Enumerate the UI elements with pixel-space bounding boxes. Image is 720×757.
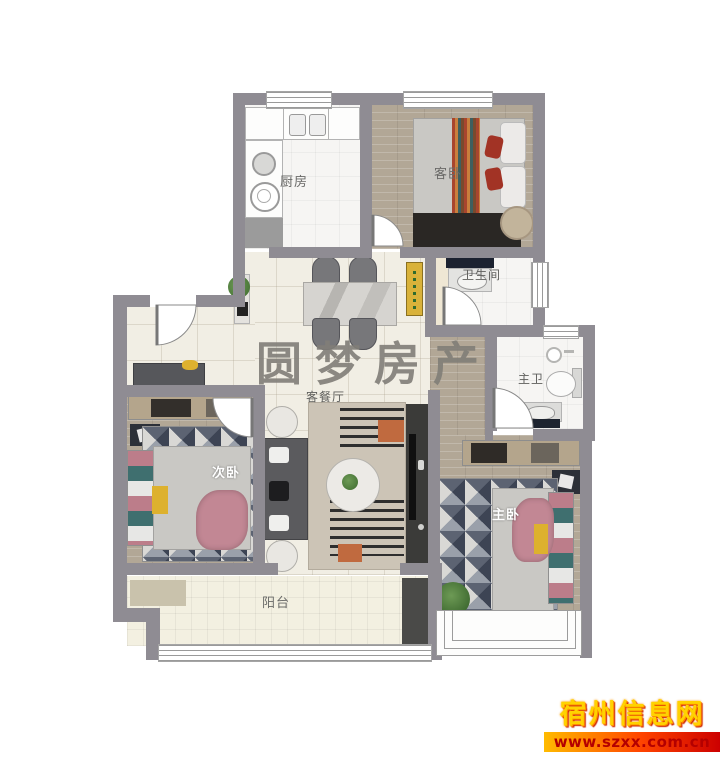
second-bed-blanket	[196, 490, 248, 550]
wall	[425, 247, 436, 337]
wall	[233, 93, 245, 307]
balcony-cabinet	[402, 578, 430, 646]
agency-watermark: 圆梦房产	[256, 328, 492, 394]
sofa	[262, 438, 308, 540]
guest-pillow	[500, 166, 526, 208]
room-label-bathroom: 卫生间	[462, 266, 501, 283]
room-label-master-bedroom: 主卧	[492, 504, 520, 523]
room-label-second-bedroom: 次卧	[212, 462, 240, 481]
stove-icon	[252, 152, 276, 176]
wall	[400, 247, 545, 258]
second-bed-pillows	[127, 450, 155, 546]
room-label-guest-bedroom: 客卧	[434, 163, 462, 182]
kitchen-window	[266, 91, 332, 109]
master-wardrobe	[462, 440, 580, 466]
wall	[233, 247, 245, 258]
master-bathroom-window	[543, 325, 579, 339]
living-rug-accent	[338, 544, 362, 562]
bathroom-door-arc	[442, 286, 482, 326]
guest-bedroom-window	[403, 91, 493, 109]
balcony-mat	[130, 580, 186, 606]
entry-door-arc	[155, 305, 197, 347]
wall	[485, 429, 493, 441]
guest-pillow	[500, 122, 526, 164]
room-label-kitchen: 厨房	[280, 171, 308, 190]
wall	[253, 385, 265, 575]
kitchen-sink	[283, 107, 329, 140]
room-label-master-bathroom: 主卫	[518, 370, 544, 387]
guest-bedroom-door-arc	[371, 214, 404, 247]
second-bedroom-door-arc	[212, 397, 253, 438]
tall-cabinet	[406, 262, 423, 316]
site-branding: 宿州信息网 www.szxx.com.cn	[544, 692, 720, 752]
tv-cabinet	[406, 404, 428, 566]
shower-handle-icon	[564, 350, 574, 353]
master-bed-throw	[534, 524, 548, 554]
wall	[269, 247, 372, 258]
shower-icon	[546, 347, 562, 363]
toilet-icon	[546, 371, 576, 397]
living-rug-accent	[378, 420, 404, 442]
master-bathroom-door-arc	[492, 387, 534, 429]
washer-drum-icon	[257, 189, 271, 203]
wall	[253, 563, 278, 575]
room-label-balcony: 阳台	[262, 592, 290, 611]
guest-rug	[500, 206, 534, 240]
wall	[113, 563, 265, 575]
site-name: 宿州信息网	[544, 692, 720, 731]
side-table	[266, 406, 298, 438]
balcony-window	[158, 644, 432, 662]
kitchen-appliance	[245, 218, 283, 248]
master-bay-window-frame	[452, 610, 568, 641]
second-bed-throw	[152, 486, 168, 514]
coffee-table-plant-icon	[342, 474, 358, 490]
site-url: www.szxx.com.cn	[544, 732, 720, 752]
floor-plan: 厨房 客卧 卫生间 主卫 客餐厅 次卧 主卧 阳台 圆梦房产 宿州信息网 www…	[0, 0, 720, 757]
shoe-cabinet-decor	[182, 360, 198, 370]
bathroom-window	[531, 262, 549, 308]
wall	[113, 385, 253, 397]
wall	[583, 325, 595, 440]
